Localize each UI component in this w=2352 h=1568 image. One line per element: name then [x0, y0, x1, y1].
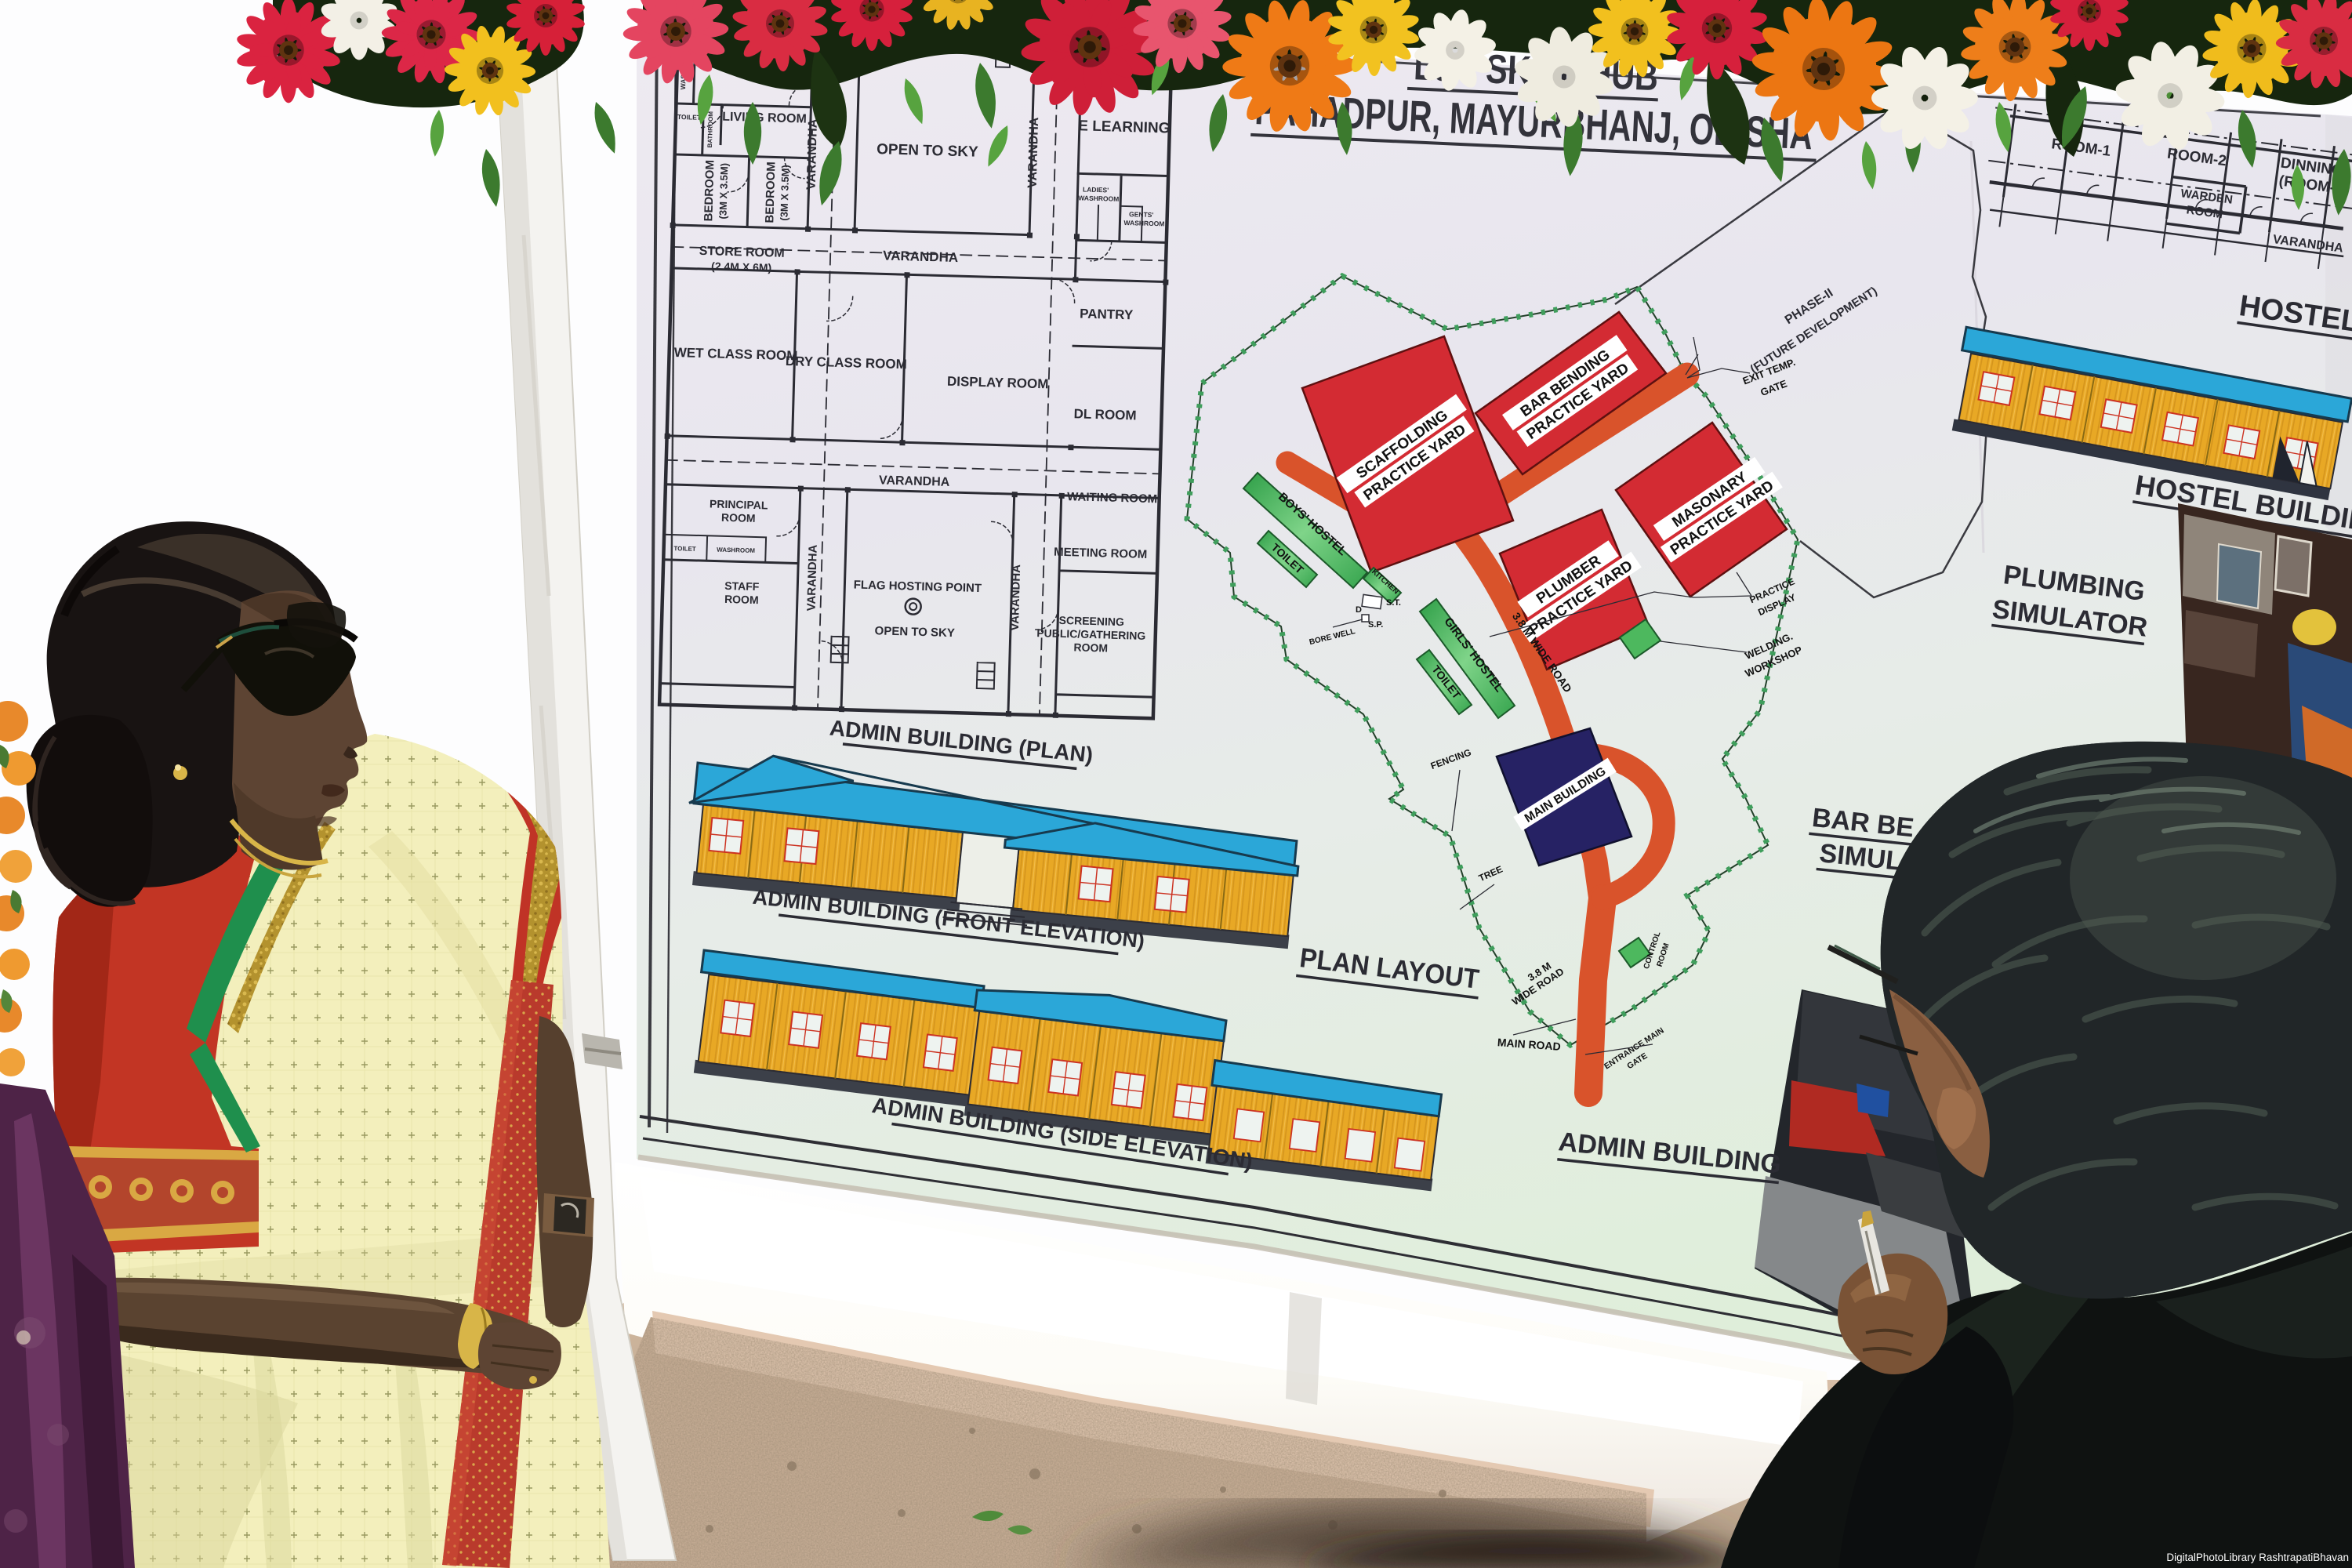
svg-text:OPEN TO SKY: OPEN TO SKY	[874, 624, 955, 640]
svg-text:DigitalPhotoLibrary Rashtrapat: DigitalPhotoLibrary RashtrapatiBhavan	[2166, 1552, 2349, 1563]
svg-text:SCREENING: SCREENING	[1058, 614, 1124, 628]
svg-text:VARANDHA: VARANDHA	[883, 248, 959, 265]
svg-text:WASHROOM: WASHROOM	[1078, 194, 1119, 202]
svg-text:OPEN TO SKY: OPEN TO SKY	[877, 141, 978, 161]
svg-text:PRINCIPAL: PRINCIPAL	[710, 497, 768, 511]
svg-text:MEETING ROOM: MEETING ROOM	[1054, 546, 1148, 561]
svg-text:PANTRY: PANTRY	[1080, 306, 1134, 322]
svg-text:VARANDHA: VARANDHA	[1026, 117, 1042, 188]
svg-text:VARANDHA: VARANDHA	[1008, 564, 1023, 631]
svg-text:DISPLAY ROOM: DISPLAY ROOM	[947, 374, 1049, 392]
svg-text:LIVING ROOM: LIVING ROOM	[722, 111, 807, 126]
svg-text:VARANDHA: VARANDHA	[804, 544, 819, 611]
svg-text:TOILET: TOILET	[673, 545, 696, 553]
svg-text:STORE ROOM: STORE ROOM	[699, 245, 784, 260]
svg-text:VARANDHA: VARANDHA	[879, 474, 950, 489]
svg-text:WASHROOM: WASHROOM	[717, 546, 755, 554]
svg-text:TOILET: TOILET	[677, 113, 702, 122]
svg-text:LADIES': LADIES'	[1083, 185, 1109, 194]
svg-text:BEDROOM: BEDROOM	[702, 160, 717, 222]
svg-text:S.T.: S.T.	[1386, 598, 1401, 608]
svg-text:ROOM: ROOM	[1073, 641, 1108, 654]
svg-text:S.P.: S.P.	[1368, 620, 1383, 630]
svg-text:WAITING ROOM: WAITING ROOM	[1067, 490, 1157, 506]
svg-text:BEDROOM: BEDROOM	[763, 162, 778, 223]
svg-text:(3M X 3.5M): (3M X 3.5M)	[717, 163, 730, 220]
svg-text:WASHROOM: WASHROOM	[1123, 219, 1164, 227]
svg-text:(3M X 3.5M): (3M X 3.5M)	[778, 165, 791, 221]
svg-text:BATHROOM: BATHROOM	[706, 111, 714, 147]
svg-text:GENTS': GENTS'	[1129, 210, 1154, 219]
svg-text:(2.4M X 6M): (2.4M X 6M)	[711, 260, 771, 274]
svg-text:VARANDHA: VARANDHA	[804, 118, 820, 190]
svg-text:STAFF: STAFF	[724, 579, 760, 593]
svg-text:ROOM: ROOM	[724, 593, 759, 606]
svg-text:ROOM: ROOM	[721, 511, 756, 524]
svg-text:D: D	[1356, 605, 1362, 615]
svg-text:DL ROOM: DL ROOM	[1073, 406, 1136, 423]
svg-text:E LEARNING: E LEARNING	[1078, 118, 1171, 136]
